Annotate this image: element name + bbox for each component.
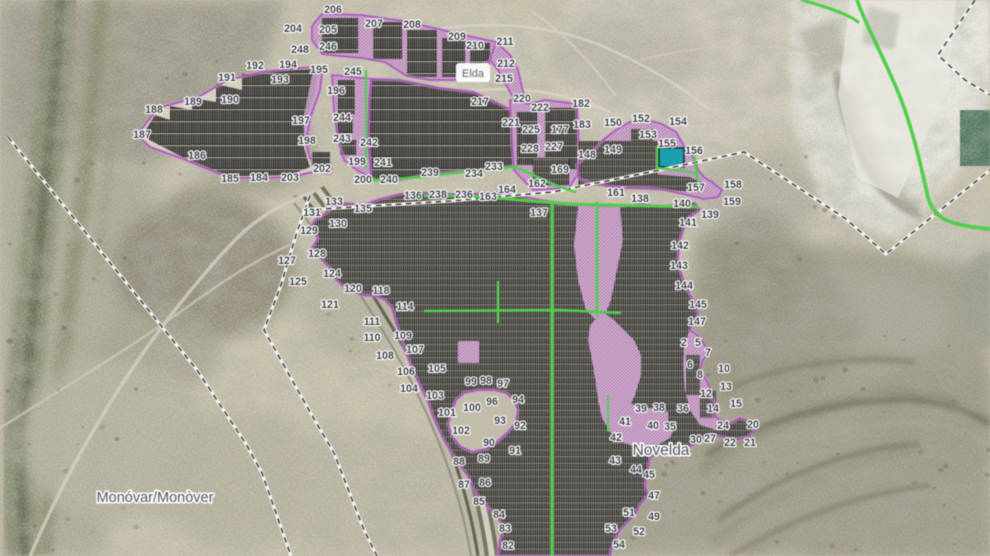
svg-text:236: 236 bbox=[455, 189, 473, 201]
svg-text:54: 54 bbox=[613, 539, 625, 551]
svg-text:199: 199 bbox=[348, 156, 366, 168]
svg-text:183: 183 bbox=[573, 119, 591, 131]
svg-text:245: 245 bbox=[344, 66, 362, 78]
svg-text:225: 225 bbox=[522, 124, 540, 136]
svg-text:141: 141 bbox=[679, 217, 697, 229]
svg-text:241: 241 bbox=[374, 157, 392, 169]
svg-text:194: 194 bbox=[279, 59, 297, 71]
svg-text:148: 148 bbox=[578, 149, 596, 161]
svg-text:221: 221 bbox=[502, 117, 520, 129]
svg-text:184: 184 bbox=[250, 172, 268, 184]
svg-text:13: 13 bbox=[720, 381, 732, 393]
svg-text:234: 234 bbox=[465, 168, 483, 180]
svg-text:87: 87 bbox=[458, 479, 470, 491]
svg-text:106: 106 bbox=[397, 366, 415, 378]
svg-text:92: 92 bbox=[514, 420, 526, 432]
svg-text:187: 187 bbox=[133, 129, 151, 141]
svg-text:Elda: Elda bbox=[462, 68, 485, 80]
svg-text:204: 204 bbox=[284, 23, 302, 35]
svg-text:154: 154 bbox=[669, 116, 687, 128]
svg-text:129: 129 bbox=[300, 225, 318, 237]
svg-text:82: 82 bbox=[502, 540, 514, 552]
svg-text:239: 239 bbox=[421, 167, 439, 179]
svg-text:244: 244 bbox=[333, 112, 351, 124]
svg-text:52: 52 bbox=[633, 526, 645, 538]
svg-text:136: 136 bbox=[404, 190, 422, 202]
svg-text:14: 14 bbox=[707, 403, 719, 415]
svg-text:41: 41 bbox=[619, 416, 631, 428]
svg-text:127: 127 bbox=[278, 255, 296, 267]
svg-text:108: 108 bbox=[376, 350, 394, 362]
svg-text:217: 217 bbox=[471, 96, 489, 108]
svg-text:200: 200 bbox=[354, 174, 372, 186]
svg-text:198: 198 bbox=[298, 135, 316, 147]
svg-text:188: 188 bbox=[145, 104, 163, 116]
svg-text:147: 147 bbox=[688, 316, 706, 328]
svg-text:20: 20 bbox=[747, 419, 759, 431]
svg-text:207: 207 bbox=[365, 18, 383, 30]
svg-text:94: 94 bbox=[512, 394, 524, 406]
svg-text:15: 15 bbox=[730, 398, 742, 410]
svg-text:135: 135 bbox=[354, 203, 372, 215]
svg-text:215: 215 bbox=[495, 73, 513, 85]
svg-text:149: 149 bbox=[604, 144, 622, 156]
svg-text:51: 51 bbox=[623, 507, 635, 519]
svg-text:5: 5 bbox=[695, 337, 701, 349]
svg-text:114: 114 bbox=[396, 301, 413, 313]
svg-text:130: 130 bbox=[329, 218, 347, 230]
svg-text:196: 196 bbox=[327, 85, 345, 97]
svg-text:163: 163 bbox=[479, 191, 497, 203]
svg-text:202: 202 bbox=[313, 163, 331, 175]
svg-text:155: 155 bbox=[658, 138, 676, 150]
svg-text:228: 228 bbox=[521, 143, 539, 155]
svg-text:140: 140 bbox=[673, 198, 691, 210]
svg-text:40: 40 bbox=[647, 420, 659, 432]
svg-text:24: 24 bbox=[717, 420, 729, 432]
svg-text:189: 189 bbox=[184, 96, 202, 108]
svg-text:2: 2 bbox=[681, 337, 687, 349]
svg-text:209: 209 bbox=[448, 31, 466, 43]
svg-text:142: 142 bbox=[671, 240, 689, 252]
svg-text:227: 227 bbox=[545, 141, 563, 153]
svg-text:169: 169 bbox=[551, 164, 569, 176]
svg-text:91: 91 bbox=[509, 445, 521, 457]
svg-text:Monóvar/Monòver: Monóvar/Monòver bbox=[97, 490, 214, 506]
svg-text:205: 205 bbox=[319, 24, 337, 36]
svg-text:144: 144 bbox=[675, 280, 693, 292]
svg-text:206: 206 bbox=[324, 4, 342, 16]
svg-text:109: 109 bbox=[394, 330, 412, 342]
svg-text:Novelda: Novelda bbox=[633, 442, 690, 459]
svg-text:222: 222 bbox=[531, 102, 549, 114]
svg-text:210: 210 bbox=[466, 40, 484, 52]
svg-text:86: 86 bbox=[479, 477, 491, 489]
svg-text:158: 158 bbox=[724, 179, 742, 191]
svg-text:30: 30 bbox=[690, 434, 702, 446]
svg-text:110: 110 bbox=[363, 332, 380, 344]
svg-text:159: 159 bbox=[723, 196, 741, 208]
svg-text:10: 10 bbox=[718, 363, 730, 375]
svg-text:38: 38 bbox=[653, 402, 665, 414]
svg-text:104: 104 bbox=[400, 383, 418, 395]
svg-text:186: 186 bbox=[188, 150, 206, 162]
svg-text:182: 182 bbox=[572, 98, 590, 110]
svg-text:22: 22 bbox=[724, 437, 736, 449]
svg-text:139: 139 bbox=[701, 209, 719, 221]
svg-text:192: 192 bbox=[246, 60, 264, 72]
svg-text:248: 248 bbox=[291, 44, 309, 56]
svg-text:164: 164 bbox=[498, 184, 516, 196]
svg-text:102: 102 bbox=[452, 425, 470, 437]
svg-text:6: 6 bbox=[687, 359, 693, 371]
svg-text:177: 177 bbox=[551, 124, 569, 136]
svg-text:42: 42 bbox=[610, 432, 622, 444]
svg-text:8: 8 bbox=[697, 369, 703, 381]
svg-text:156: 156 bbox=[685, 145, 703, 157]
svg-text:203: 203 bbox=[281, 172, 299, 184]
svg-text:211: 211 bbox=[496, 36, 513, 48]
svg-text:145: 145 bbox=[689, 299, 707, 311]
svg-text:47: 47 bbox=[648, 490, 660, 502]
svg-text:111: 111 bbox=[364, 316, 381, 328]
svg-text:238: 238 bbox=[429, 189, 447, 201]
svg-text:242: 242 bbox=[360, 137, 378, 149]
svg-text:88: 88 bbox=[453, 456, 465, 468]
svg-text:35: 35 bbox=[664, 421, 676, 433]
svg-text:99: 99 bbox=[465, 376, 477, 388]
svg-text:101: 101 bbox=[438, 407, 456, 419]
svg-text:105: 105 bbox=[428, 363, 446, 375]
svg-text:21: 21 bbox=[744, 437, 756, 449]
svg-text:12: 12 bbox=[700, 388, 712, 400]
svg-text:85: 85 bbox=[473, 496, 485, 508]
svg-text:45: 45 bbox=[643, 469, 655, 481]
svg-text:191: 191 bbox=[218, 72, 236, 84]
svg-text:93: 93 bbox=[494, 415, 506, 427]
svg-text:118: 118 bbox=[372, 285, 389, 297]
svg-text:162: 162 bbox=[528, 178, 546, 190]
svg-text:157: 157 bbox=[687, 182, 705, 194]
svg-text:128: 128 bbox=[308, 248, 326, 260]
svg-text:220: 220 bbox=[513, 93, 531, 105]
svg-text:84: 84 bbox=[493, 509, 505, 521]
svg-text:49: 49 bbox=[648, 511, 660, 523]
svg-text:124: 124 bbox=[323, 268, 341, 280]
svg-text:138: 138 bbox=[631, 193, 649, 205]
svg-text:137: 137 bbox=[530, 207, 548, 219]
svg-text:83: 83 bbox=[499, 523, 511, 535]
svg-text:121: 121 bbox=[321, 299, 339, 311]
svg-text:208: 208 bbox=[403, 19, 421, 31]
svg-text:98: 98 bbox=[480, 375, 492, 387]
svg-text:243: 243 bbox=[333, 133, 351, 145]
svg-text:190: 190 bbox=[221, 94, 239, 106]
svg-text:197: 197 bbox=[292, 115, 310, 127]
svg-text:89: 89 bbox=[478, 453, 490, 465]
svg-text:53: 53 bbox=[605, 523, 617, 535]
svg-text:44: 44 bbox=[630, 464, 642, 476]
svg-text:212: 212 bbox=[497, 58, 515, 70]
svg-text:97: 97 bbox=[497, 378, 509, 390]
svg-text:43: 43 bbox=[609, 455, 621, 467]
svg-text:193: 193 bbox=[271, 74, 289, 86]
svg-text:100: 100 bbox=[463, 402, 481, 414]
svg-text:185: 185 bbox=[221, 173, 239, 185]
svg-text:107: 107 bbox=[406, 344, 424, 356]
svg-text:120: 120 bbox=[344, 283, 362, 295]
svg-text:195: 195 bbox=[310, 64, 328, 76]
svg-text:153: 153 bbox=[639, 129, 657, 141]
svg-text:96: 96 bbox=[486, 396, 498, 408]
svg-text:125: 125 bbox=[289, 276, 307, 288]
svg-text:103: 103 bbox=[426, 390, 444, 402]
svg-text:27: 27 bbox=[704, 433, 716, 445]
svg-text:152: 152 bbox=[632, 113, 650, 125]
svg-text:39: 39 bbox=[635, 403, 647, 415]
svg-text:90: 90 bbox=[483, 437, 495, 449]
svg-text:131: 131 bbox=[303, 207, 321, 219]
svg-text:143: 143 bbox=[670, 260, 688, 272]
svg-text:233: 233 bbox=[485, 161, 503, 173]
svg-text:7: 7 bbox=[705, 347, 711, 359]
svg-text:161: 161 bbox=[607, 187, 625, 199]
svg-text:36: 36 bbox=[677, 403, 689, 415]
svg-text:246: 246 bbox=[319, 41, 337, 53]
svg-text:240: 240 bbox=[380, 174, 398, 186]
svg-text:133: 133 bbox=[325, 196, 343, 208]
svg-text:150: 150 bbox=[604, 117, 622, 129]
